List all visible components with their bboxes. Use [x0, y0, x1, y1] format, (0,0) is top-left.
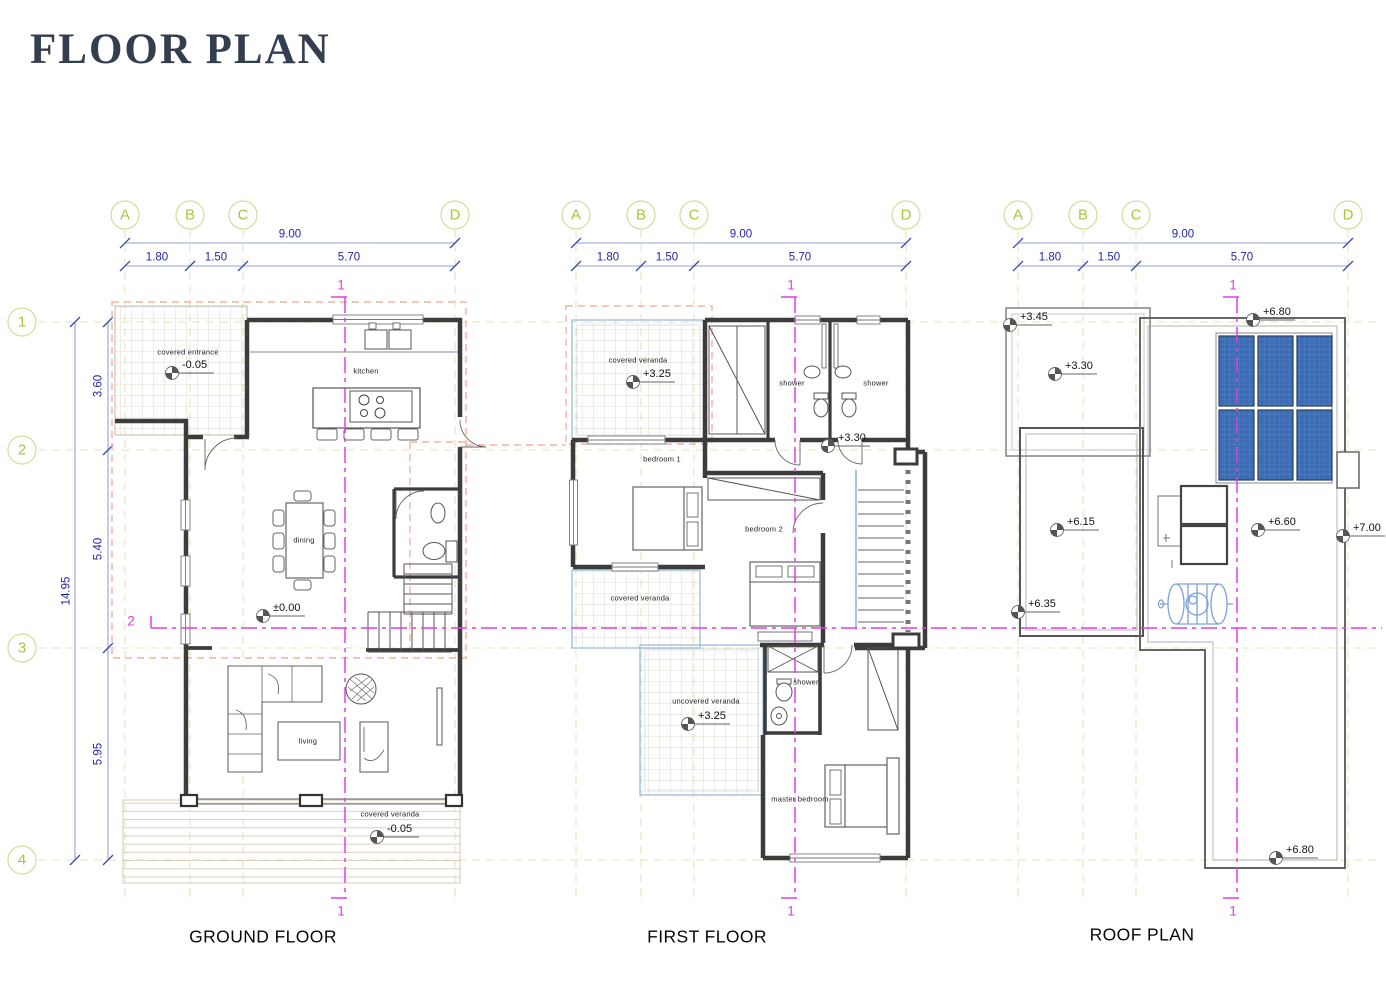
section-2-label: 2: [127, 614, 135, 628]
grid-row-3: 3: [18, 641, 26, 656]
section-1-label: 1: [787, 278, 795, 292]
grid-letter-d: D: [450, 208, 461, 223]
dim-seg1: 1.80: [146, 252, 168, 264]
floorplan-sheet: FLOOR PLAN A B C D A B C D A B C D 1 2 3…: [0, 0, 1386, 986]
dim-left-seg1: 3.60: [93, 375, 105, 397]
room-label-covered-veranda: covered veranda: [361, 810, 420, 818]
first-floor-drawing: [566, 306, 925, 862]
caption-roof-plan: ROOF PLAN: [1090, 926, 1195, 944]
room-label-covered-veranda: covered veranda: [609, 356, 668, 364]
page-title: FLOOR PLAN: [30, 28, 331, 71]
grid-letter-b: B: [185, 208, 195, 223]
grid-row-2: 2: [18, 443, 26, 458]
level-text: +3.25: [698, 711, 726, 722]
grid-letter-c: C: [238, 208, 249, 223]
dim-left-total: 14.95: [61, 577, 73, 606]
grid-letter-c: C: [1131, 208, 1142, 223]
section-1-label: 1: [1229, 278, 1237, 292]
grid-letter-d: D: [1343, 208, 1354, 223]
room-label-shower: shower: [863, 379, 888, 387]
dim-left-seg3: 5.95: [93, 743, 105, 765]
grid-letter-c: C: [689, 208, 700, 223]
dim-total: 9.00: [279, 229, 301, 241]
first-bath-fixtures: [768, 366, 856, 725]
level-text: +3.30: [1065, 361, 1093, 372]
level-text: +3.25: [643, 369, 671, 380]
dim-seg1: 1.80: [1039, 252, 1061, 264]
first-stairs: [856, 449, 919, 648]
room-label-kitchen: kitchen: [353, 367, 378, 375]
section-1-label: 1: [787, 904, 795, 918]
dim-seg1: 1.80: [597, 252, 619, 264]
section-1-label: 1: [337, 904, 345, 918]
room-label-uncovered-veranda: uncovered veranda: [672, 697, 740, 705]
dim-seg2: 1.50: [1098, 252, 1120, 264]
wc-fixtures: [423, 503, 457, 562]
roof-plan-drawing: [1006, 308, 1359, 868]
dim-seg2: 1.50: [656, 252, 678, 264]
dim-left-seg2: 5.40: [93, 538, 105, 560]
level-text: +3.30: [838, 433, 866, 444]
section-1-label: 1: [1229, 904, 1237, 918]
level-text: +6.35: [1028, 599, 1056, 610]
dim-total: 9.00: [730, 229, 752, 241]
room-label-bedroom2: bedroom 2: [745, 525, 783, 533]
section-1-label: 1: [337, 278, 345, 292]
grid-letter-d: D: [901, 208, 912, 223]
grid-letter-b: B: [636, 208, 646, 223]
level-text: +6.15: [1067, 517, 1095, 528]
water-tank: [1159, 584, 1234, 624]
grid-row-1: 1: [18, 315, 26, 330]
caption-first-floor: FIRST FLOOR: [647, 928, 767, 946]
roof-equipment: [1158, 486, 1227, 568]
room-label-covered-entrance: covered entrance: [157, 348, 218, 356]
dim-seg3: 5.70: [789, 252, 811, 264]
kitchen-fixtures: [250, 323, 458, 440]
grid-letter-b: B: [1078, 208, 1088, 223]
caption-ground-floor: GROUND FLOOR: [189, 928, 337, 946]
dim-seg3: 5.70: [338, 252, 360, 264]
level-text: +6.80: [1263, 307, 1291, 318]
room-label-covered-veranda: covered veranda: [611, 594, 670, 602]
room-label-living: living: [299, 737, 317, 745]
level-text: +6.60: [1268, 517, 1296, 528]
living-furniture: [228, 666, 442, 772]
grid-letter-a: A: [1013, 208, 1023, 223]
dim-seg2: 1.50: [205, 252, 227, 264]
ground-floor-drawing: [112, 302, 566, 883]
grid-letter-a: A: [571, 208, 581, 223]
grid-letter-a: A: [120, 208, 130, 223]
level-text: -0.05: [182, 360, 207, 371]
level-text: ±0.00: [273, 603, 300, 614]
room-label-bedroom1: bedroom 1: [643, 455, 681, 463]
grid-row-4: 4: [18, 853, 26, 868]
level-text: +7.00: [1353, 523, 1381, 534]
drawing-linework: [0, 0, 1386, 986]
ground-entrance-tiles: [115, 306, 247, 435]
first-veranda-mid-tiles: [572, 570, 700, 648]
level-text: +3.45: [1020, 312, 1048, 323]
dim-seg3: 5.70: [1231, 252, 1253, 264]
room-label-shower: shower: [793, 678, 818, 686]
level-text: -0.05: [387, 824, 412, 835]
room-label-master-bedroom: master bedroom: [771, 795, 828, 803]
room-label-dining: dining: [293, 536, 314, 544]
solar-panels: [1216, 333, 1332, 483]
room-label-shower: shower: [779, 379, 804, 387]
dim-total: 9.00: [1172, 229, 1194, 241]
level-text: +6.80: [1286, 845, 1314, 856]
roof-chimney: [1337, 452, 1359, 488]
